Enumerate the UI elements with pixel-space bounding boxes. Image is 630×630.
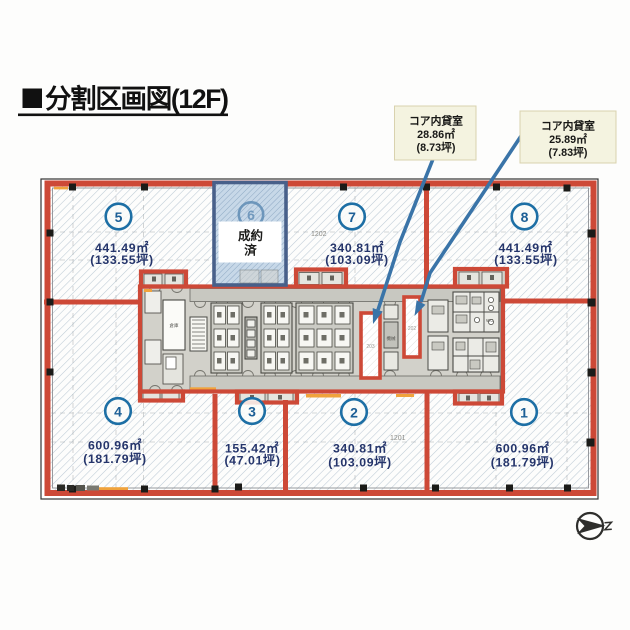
svg-text:3: 3 — [248, 404, 256, 420]
svg-text:成約: 成約 — [238, 228, 263, 243]
svg-text:(181.79坪): (181.79坪) — [83, 452, 147, 466]
svg-text:コア内貸室: コア内貸室 — [409, 114, 463, 128]
svg-text:(7.83坪): (7.83坪) — [548, 146, 587, 159]
svg-text:1202: 1202 — [311, 231, 327, 238]
svg-text:(103.09坪): (103.09坪) — [325, 253, 389, 267]
svg-text:機械: 機械 — [387, 335, 396, 342]
svg-text:コア内貸室: コア内貸室 — [541, 119, 595, 133]
svg-text:25.89㎡: 25.89㎡ — [549, 132, 587, 146]
svg-text:5: 5 — [115, 209, 123, 225]
svg-text:(8.73坪): (8.73坪) — [416, 141, 455, 154]
svg-text:340.81㎡: 340.81㎡ — [333, 441, 387, 456]
svg-text:4: 4 — [114, 404, 122, 420]
svg-text:(133.55坪): (133.55坪) — [90, 253, 154, 267]
svg-text:分割区画図(12F): 分割区画図(12F) — [45, 84, 229, 114]
svg-text:済: 済 — [244, 243, 257, 258]
svg-text:(103.09坪): (103.09坪) — [328, 456, 392, 470]
svg-text:1201: 1201 — [390, 435, 406, 442]
svg-text:2: 2 — [350, 405, 358, 421]
svg-text:6: 6 — [247, 207, 255, 223]
svg-text:(181.79坪): (181.79坪) — [491, 456, 555, 470]
svg-text:倉庫: 倉庫 — [170, 322, 179, 329]
svg-text:(133.55坪): (133.55坪) — [494, 253, 558, 267]
svg-text:28.86㎡: 28.86㎡ — [417, 127, 455, 141]
svg-text:202: 202 — [408, 326, 417, 332]
svg-text:(47.01坪): (47.01坪) — [224, 454, 280, 468]
svg-text:7: 7 — [348, 209, 356, 225]
svg-text:WC: WC — [486, 318, 494, 323]
svg-text:600.96㎡: 600.96㎡ — [495, 441, 549, 456]
svg-text:8: 8 — [521, 209, 529, 225]
svg-text:203: 203 — [366, 344, 375, 350]
svg-text:600.96㎡: 600.96㎡ — [88, 438, 142, 453]
svg-text:1: 1 — [520, 405, 528, 421]
